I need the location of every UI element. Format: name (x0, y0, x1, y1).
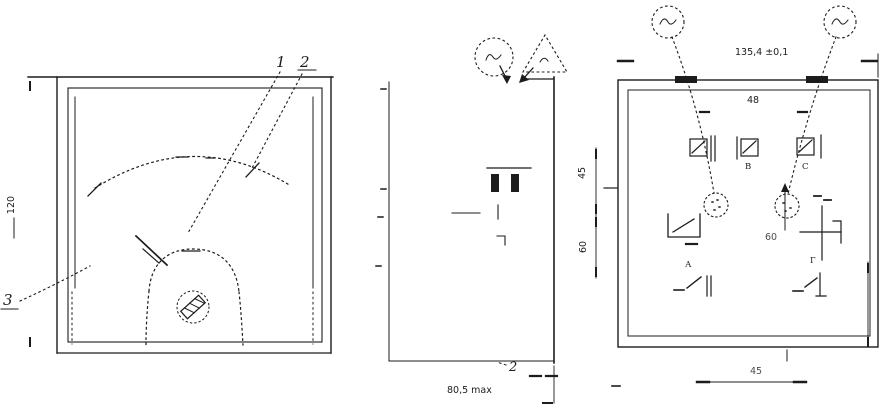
side-callout-leader (497, 362, 506, 365)
slotted-screw (181, 295, 206, 318)
leader-1 (188, 72, 280, 233)
corrector-marks (814, 196, 831, 200)
terminal-upper-left (690, 136, 715, 161)
seal-triangle-mark (540, 58, 548, 62)
screw-slot-rect (181, 295, 206, 318)
terminal-bracket (668, 214, 700, 244)
seal-cup-left (704, 193, 728, 217)
mechanism-dome-right (239, 292, 243, 345)
terminal-lower-left: А (674, 260, 711, 296)
front-bezel-rect (68, 88, 322, 342)
callout-label-bezel: 3 (3, 291, 13, 309)
terminal-upper-right: С (797, 135, 821, 172)
callout-label-scale: 2 (299, 53, 310, 71)
depth-dim-text: 80,5 max (447, 385, 492, 396)
seal-arrow-1-head (502, 75, 511, 84)
rear-left-dimension: 45 60 (577, 148, 617, 278)
terminal-slot (805, 278, 817, 287)
side-left-ticks (376, 89, 386, 266)
rear-inner-outline (628, 90, 870, 336)
height-dim-text: 120 (6, 196, 17, 214)
side-view: 2 80,5 max (376, 35, 567, 403)
width-dim-text: 135,4 ±0,1 (735, 47, 788, 58)
seal-circle-symbol (475, 38, 513, 76)
scale-arc (95, 156, 291, 188)
pointer-needle (136, 236, 167, 265)
mechanism-dome-top (149, 249, 239, 292)
callout-label-pointer: 1 (276, 53, 286, 71)
terminal-label-b: В (745, 162, 751, 172)
bottom-dim-text: 45 (750, 366, 762, 377)
terminal-label-c: С (802, 162, 809, 172)
front-view: 1 2 3 120 (1, 53, 333, 353)
seal-leader-left (672, 37, 714, 193)
drawing-canvas: 1 2 3 120 2 80,5 max (0, 0, 890, 408)
terminal-upper-mid: В (737, 137, 758, 172)
terminal-stud-1 (491, 174, 499, 192)
bracket-profile-hook (497, 236, 505, 245)
left-dim-upper-text: 45 (577, 167, 588, 179)
terminal-label-g: Г (810, 256, 816, 266)
rear-center-dim-text: 60 (765, 232, 777, 243)
seal-circle-mark (486, 55, 501, 60)
seal-cup-arrow-head (781, 183, 789, 192)
seal-arrow-2-line (524, 68, 533, 78)
leader-3 (20, 266, 90, 301)
scale-end-tick-right (246, 163, 259, 177)
seal-triangle-symbol (523, 35, 567, 72)
terminal-label-a: А (685, 260, 692, 270)
terminal-double-bar (711, 136, 715, 161)
bracket-slot (673, 219, 694, 232)
technical-drawing: 1 2 3 120 2 80,5 max (0, 0, 890, 408)
rear-view: 135,4 ±0,1 48 В С (577, 6, 878, 386)
side-callout-label: 2 (508, 360, 517, 375)
terminal-post (816, 273, 826, 296)
rear-bottom-dimension: 45 (612, 350, 806, 386)
terminal-slot (687, 277, 701, 288)
seal-circle-right-mark (832, 19, 848, 24)
seal-leader-right (788, 37, 836, 194)
terminal-stud-2 (511, 174, 519, 192)
zero-corrector (800, 196, 841, 260)
rear-top-dim-text: 48 (747, 95, 759, 106)
screw-boss-circle (177, 291, 209, 323)
mounting-stud-right (806, 76, 828, 83)
terminal-slot (692, 141, 705, 153)
scale-end-tick-left (88, 183, 101, 196)
terminal-double-bar (707, 276, 711, 296)
mechanism-dome-left (146, 291, 149, 345)
seal-cup-right (775, 194, 799, 218)
seal-circle-left-mark (660, 19, 676, 24)
terminal-slot (743, 141, 756, 153)
left-dim-lower-text: 60 (578, 241, 589, 253)
seal-cup-right-dots (783, 203, 791, 211)
terminal-lower-right: Г (793, 256, 826, 296)
rear-outline (618, 80, 878, 347)
seal-cup-left-dots (712, 200, 720, 210)
